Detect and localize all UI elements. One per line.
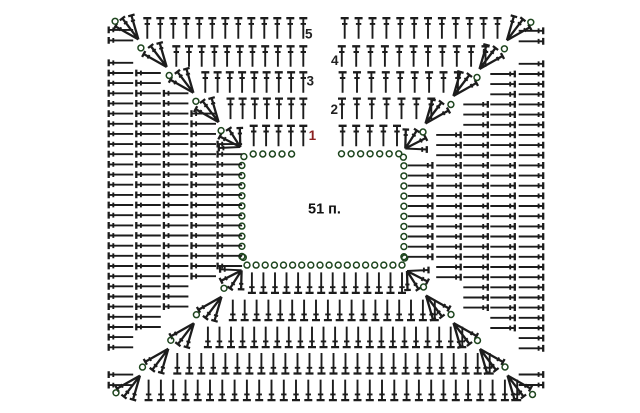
- svg-text:51 п.: 51 п.: [308, 202, 341, 218]
- svg-text:2: 2: [330, 102, 338, 117]
- svg-text:1: 1: [309, 128, 317, 143]
- svg-text:5: 5: [305, 26, 313, 41]
- svg-text:3: 3: [306, 74, 314, 89]
- svg-text:4: 4: [331, 53, 339, 68]
